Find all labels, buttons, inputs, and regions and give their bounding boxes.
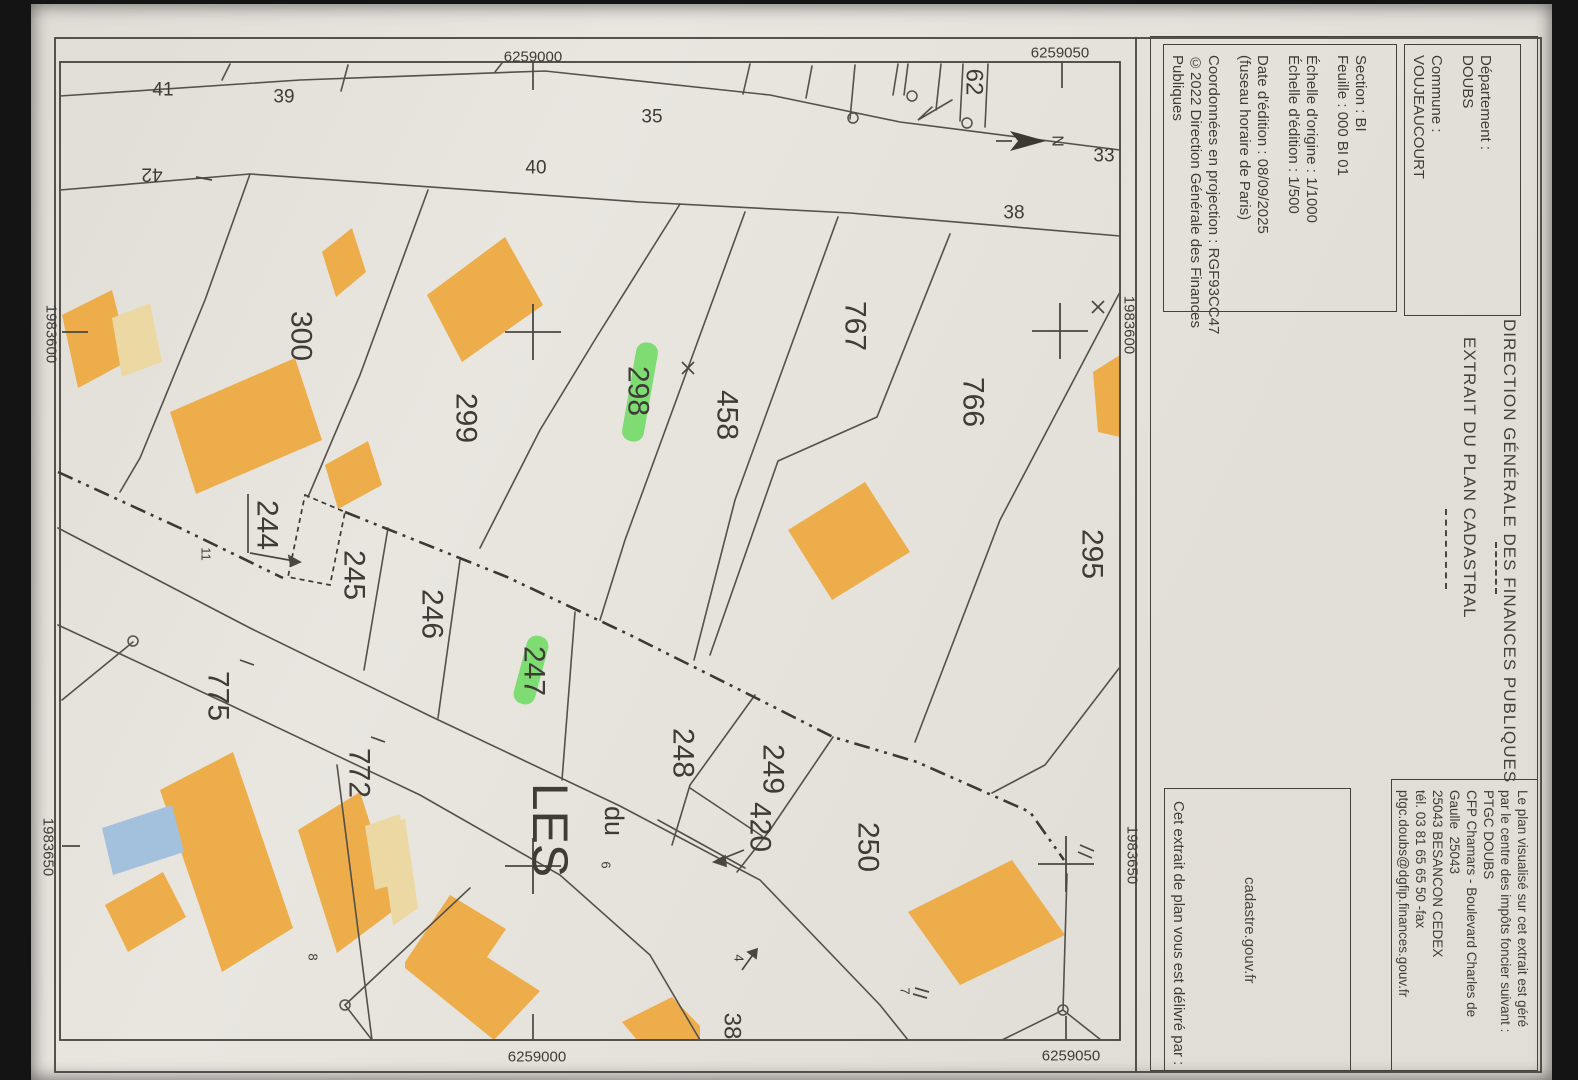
building-footprint bbox=[322, 228, 366, 297]
house-number-label: 11 bbox=[199, 547, 214, 561]
building-footprint bbox=[170, 358, 322, 494]
delivery-box: Cet extrait de plan vous est délivré par… bbox=[1164, 788, 1351, 1071]
parcel-label: 246 bbox=[416, 589, 449, 639]
parcel-label: 775 bbox=[202, 671, 235, 721]
tax-center-address-1: CFP Chamars - Boulevard Charles de bbox=[1463, 790, 1480, 1066]
building-footprint bbox=[325, 441, 382, 509]
tax-center-email: ptgc.doubs@dgfip.finances.gouv.fr bbox=[1395, 790, 1412, 1066]
parcel-label: 458 bbox=[711, 390, 744, 440]
parcel-label: 41 bbox=[152, 80, 173, 101]
parcel-label: 38 bbox=[1003, 203, 1024, 224]
grid-coordinate-label: 6259000 bbox=[508, 1049, 566, 1066]
scanned-cadastral-extract: 6259000625905062590006259050198360019836… bbox=[0, 0, 1578, 1080]
north-label: N bbox=[1049, 135, 1066, 147]
title-block-panel: Section : BI Feuille : 000 BI 01 Échelle… bbox=[1150, 36, 1538, 1071]
building-footprint bbox=[405, 895, 540, 1040]
grid-coordinate-label: 1983600 bbox=[1121, 296, 1138, 354]
street-label: LES bbox=[522, 783, 578, 878]
main-title: DIRECTION GÉNÉRALE DES FINANCES PUBLIQUE… bbox=[1499, 319, 1519, 783]
house-number-label: 4 bbox=[732, 954, 747, 961]
tax-center-intro-2: par le centre des impôts foncier suivant… bbox=[1497, 790, 1514, 1066]
parcel-label: 299 bbox=[450, 393, 483, 443]
grid-coordinate-label: 6259050 bbox=[1031, 45, 1089, 62]
house-number-label: 7 bbox=[898, 987, 913, 994]
parcel-label: 767 bbox=[839, 301, 872, 351]
building-footprint bbox=[427, 237, 543, 362]
department-value: DOUBS bbox=[1458, 55, 1476, 311]
north-arrow-icon bbox=[996, 131, 1046, 151]
parcel-244-dashed-boundary bbox=[288, 495, 345, 585]
grid-coordinate-label: 6259050 bbox=[1042, 1048, 1100, 1065]
building-footprint bbox=[908, 860, 1065, 985]
house-number-label: 8 bbox=[306, 953, 321, 960]
sheet-info-box: Section : BI Feuille : 000 BI 01 Échelle… bbox=[1163, 44, 1397, 312]
house-number-label: 6 bbox=[599, 861, 614, 868]
department-label: Département : bbox=[1476, 55, 1494, 311]
subtitle-divider bbox=[1445, 509, 1447, 589]
parcel-label: 42 bbox=[141, 164, 162, 185]
building-footprint bbox=[622, 997, 700, 1040]
street-label: du bbox=[599, 806, 629, 836]
parcel-label: 245 bbox=[338, 550, 371, 600]
tax-center-address-2: Gaulle 25043 bbox=[1446, 790, 1463, 1066]
timezone-line: (fuseau horaire de Paris) bbox=[1235, 55, 1253, 307]
grid-coordinate-label: 6259000 bbox=[504, 49, 562, 66]
parcel-label: 295 bbox=[1076, 529, 1109, 579]
grid-cross-marks bbox=[505, 303, 1094, 894]
parcel-label: 35 bbox=[641, 107, 662, 128]
parcel-label: 33 bbox=[1093, 146, 1114, 167]
parcel-label: 247 bbox=[518, 646, 551, 696]
scale-edition-line: Échelle d'édition : 1/500 bbox=[1284, 55, 1302, 307]
scale-origin-line: Échelle d'origine : 1/1000 bbox=[1302, 55, 1320, 307]
tax-center-phone: tél. 03 81 65 65 50 -fax bbox=[1412, 790, 1429, 1066]
blue-building-footprint bbox=[102, 805, 184, 875]
parcel-label: 248 bbox=[667, 728, 700, 778]
feuille-line: Feuille : 000 BI 01 bbox=[1333, 55, 1351, 307]
commune-department-box: Département : DOUBS Commune : VOUJEAUCOU… bbox=[1404, 44, 1521, 316]
parcel-label: 62 bbox=[961, 69, 988, 96]
document-type-title: EXTRAIT DU PLAN CADASTRAL bbox=[1459, 337, 1479, 619]
tax-center-box: Le plan visualisé sur cet extrait est gé… bbox=[1391, 779, 1538, 1071]
building-footprint bbox=[105, 872, 186, 952]
tax-center-city: 25043 BESANCON CEDEX bbox=[1429, 790, 1446, 1066]
building-footprint bbox=[1093, 355, 1120, 437]
parcel-label: 298 bbox=[622, 366, 655, 416]
parcel-label: 300 bbox=[285, 311, 318, 361]
light-building-footprint bbox=[112, 303, 162, 377]
edition-date-line: Date d'édition : 08/09/2025 bbox=[1253, 55, 1271, 307]
title-divider bbox=[1495, 542, 1497, 594]
parcel-label: 40 bbox=[525, 158, 546, 179]
section-line: Section : BI bbox=[1351, 55, 1369, 307]
parcel-label: 250 bbox=[852, 822, 885, 872]
building-footprint bbox=[788, 482, 910, 600]
parcel-label: 38 bbox=[719, 1013, 746, 1040]
parcel-label: 766 bbox=[957, 377, 990, 427]
parcel-label: 244 bbox=[251, 500, 284, 550]
buildings-layer bbox=[62, 228, 1120, 1040]
copyright-line-2: Publiques bbox=[1168, 55, 1186, 307]
parcel-label: 420 bbox=[744, 802, 777, 852]
building-footprint bbox=[160, 752, 293, 972]
cadastre-site-label: cadastre.gouv.fr bbox=[1241, 877, 1258, 983]
parcel-label: 39 bbox=[273, 87, 294, 108]
tax-center-intro-1: Le plan visualisé sur cet extrait est gé… bbox=[1514, 790, 1531, 1066]
delivery-intro: Cet extrait de plan vous est délivré par… bbox=[1169, 801, 1187, 1066]
copyright-line: ©2022 Direction Générale des Finances bbox=[1186, 55, 1204, 307]
projection-line: Coordonnées en projection : RGF93CC47 bbox=[1204, 55, 1222, 307]
commune-value: VOUJEAUCOURT bbox=[1409, 55, 1427, 311]
grid-coordinate-label: 1983650 bbox=[40, 818, 57, 876]
tax-center-name: PTGC DOUBS bbox=[1480, 790, 1497, 1066]
parcel-label: 249 bbox=[757, 744, 790, 794]
parcel-label: 772 bbox=[343, 748, 376, 798]
grid-coordinate-label: 1983600 bbox=[43, 305, 60, 363]
grid-coordinate-label: 1983650 bbox=[1124, 826, 1141, 884]
commune-label: Commune : bbox=[1427, 55, 1445, 311]
